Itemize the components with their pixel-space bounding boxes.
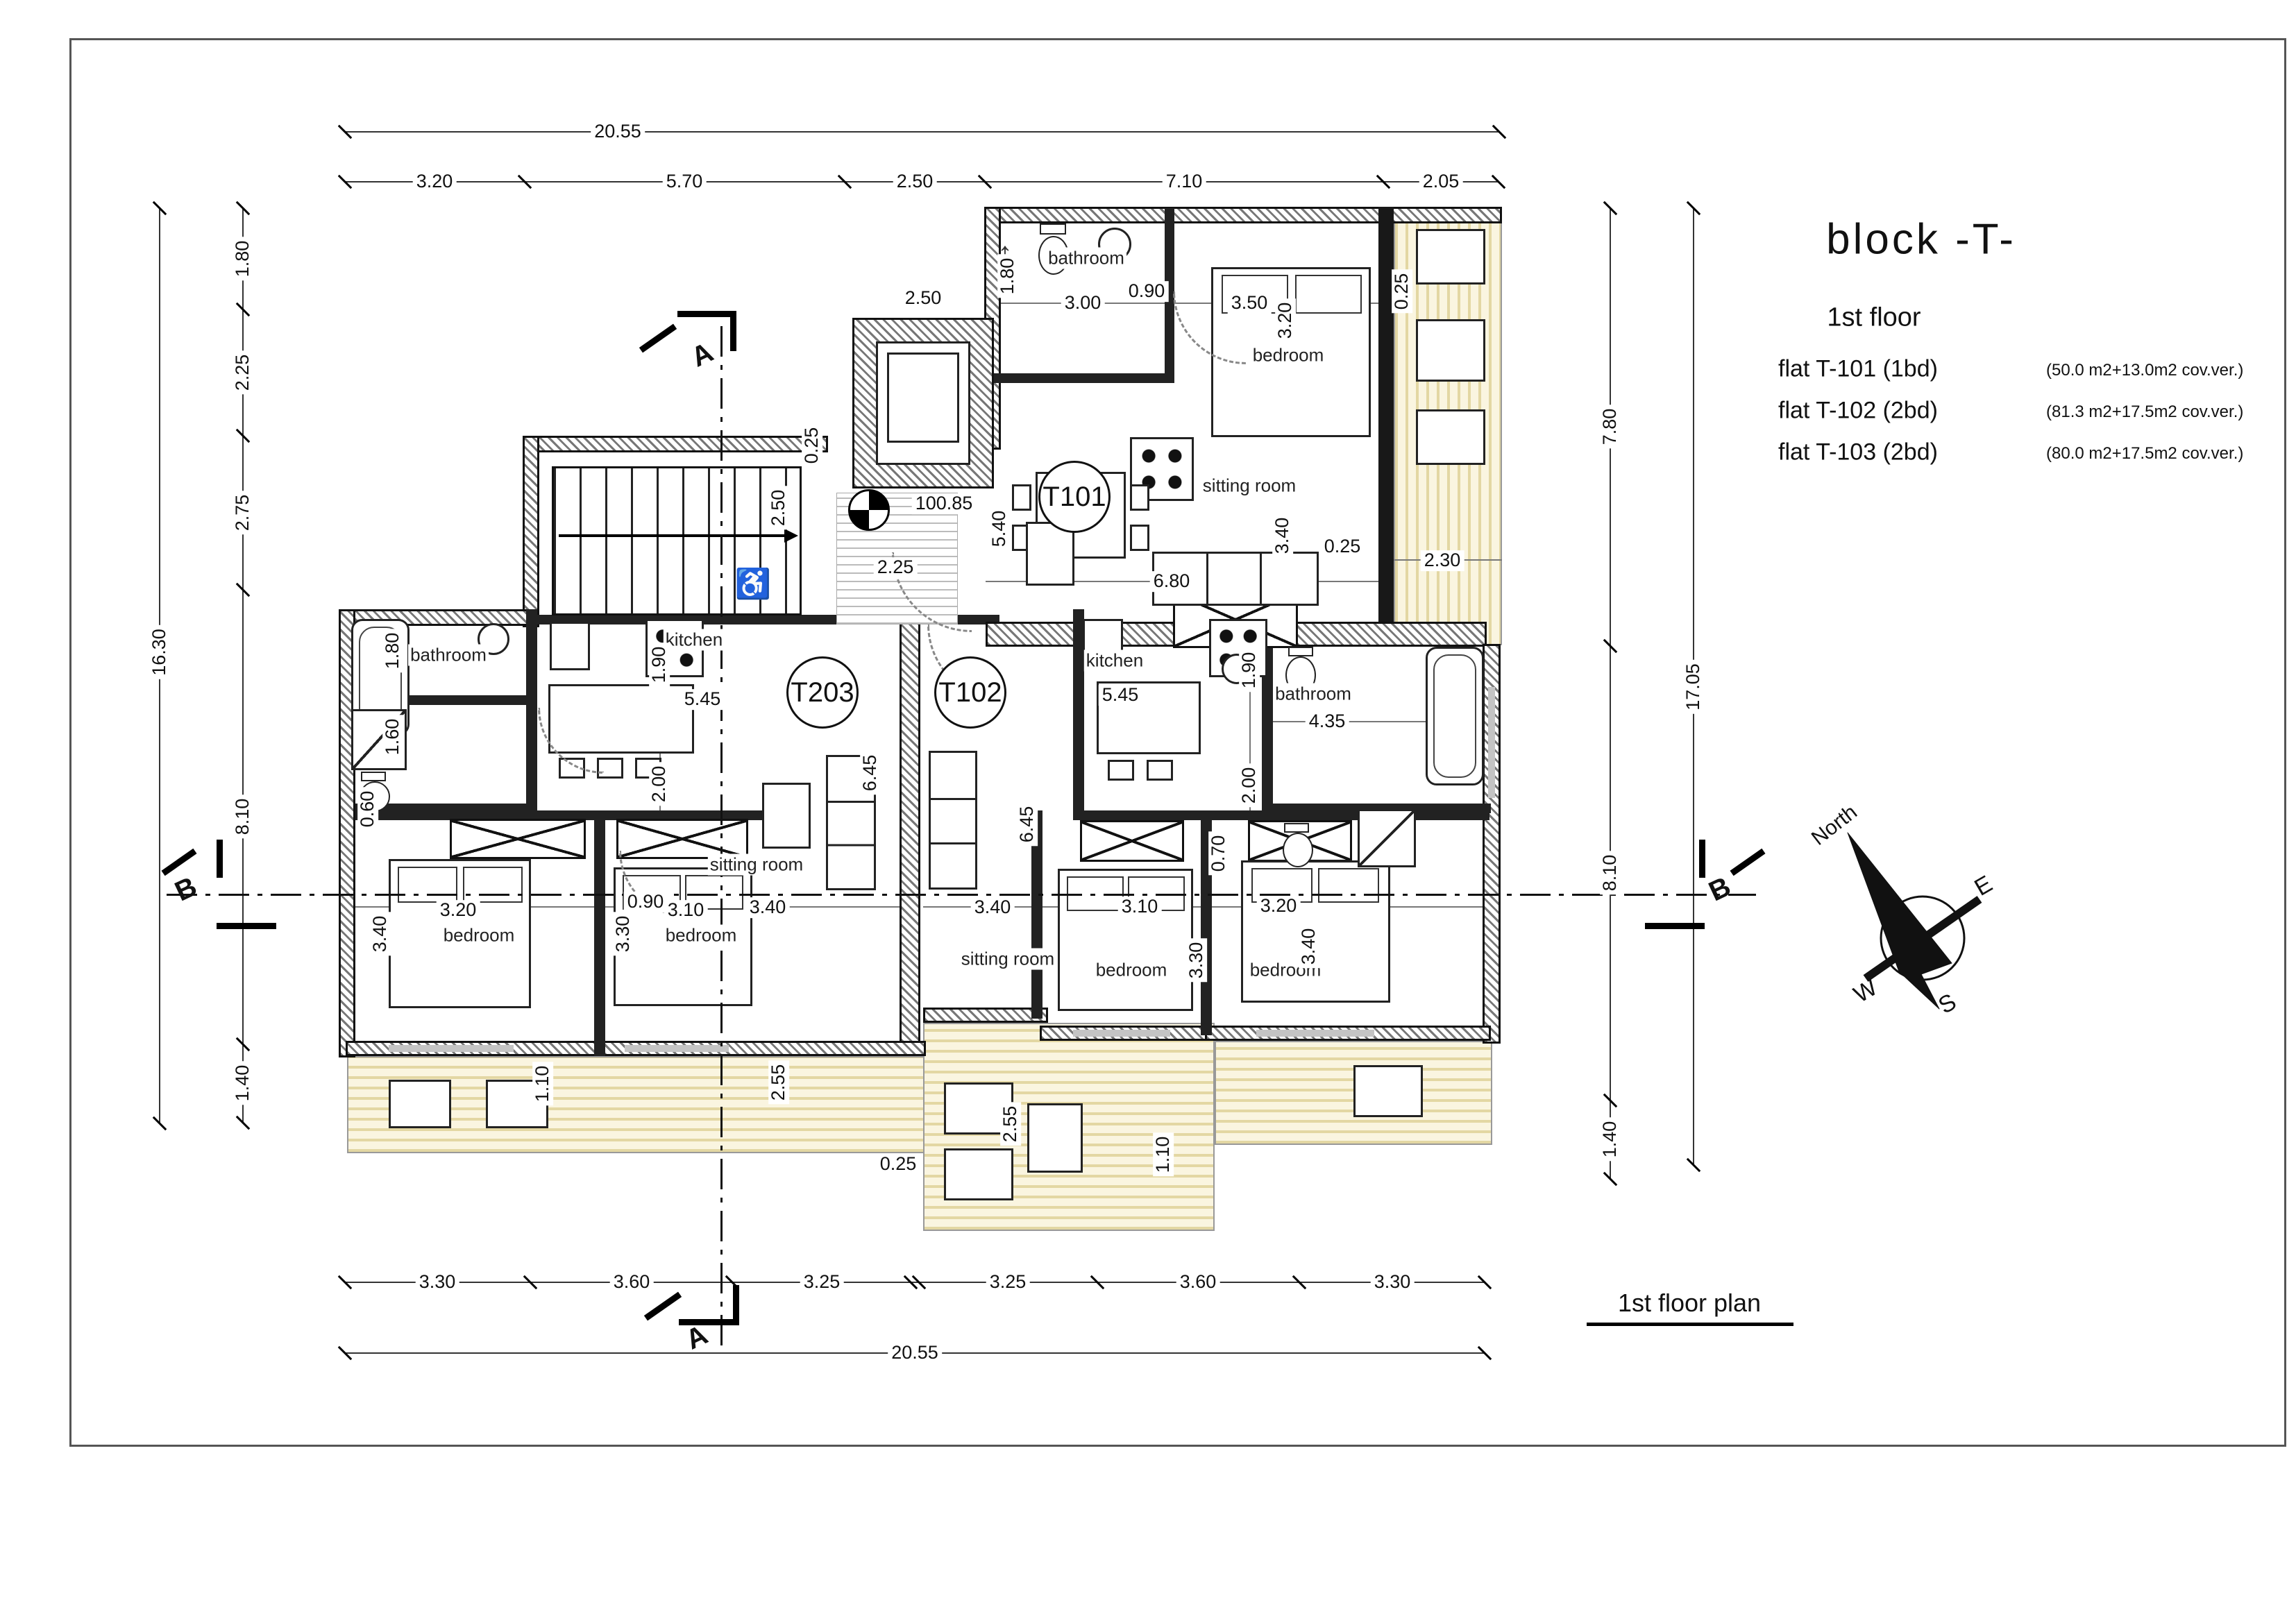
dim-inner: 0.60 (357, 788, 378, 831)
room-label-kitchen-t203: kitchen (664, 629, 725, 651)
dim-bottom-total: 20.55 (888, 1343, 942, 1363)
stair-arrow-line (559, 534, 788, 537)
dim-top-total: 20.55 (591, 121, 645, 142)
dim-inner: 0.90 (1125, 281, 1169, 302)
dim-line-left-segments (242, 208, 244, 1123)
dim-inner: 0.70 (1208, 832, 1229, 876)
dim-inner: 0.25 (1321, 536, 1365, 557)
accessibility-icon: ♿ (735, 568, 771, 602)
dim-inner: 6.45 (860, 751, 881, 795)
elevator-cab (887, 352, 959, 443)
toilet-tank (1284, 823, 1309, 833)
room-label-sitting-t203: sitting room (708, 854, 805, 876)
room-label-bedroom-l1: bedroom (441, 925, 517, 946)
dim-inner: 4.35 (1306, 711, 1349, 732)
pillow (398, 867, 457, 903)
coffee-table (762, 783, 811, 849)
flat-name-1: flat T-101 (1bd) (1778, 356, 1938, 383)
dim-inner: 1.60 (382, 715, 403, 759)
dim-inner: 1.80 (382, 629, 403, 673)
room-label-kitchen-t102: kitchen (1084, 650, 1145, 672)
dim-inner: 1.10 (1153, 1133, 1174, 1177)
flat-area-1: (50.0 m2+13.0m2 cov.ver.) (2046, 361, 2243, 380)
dim-inner: 3.20 (1275, 299, 1296, 343)
dim-left-1: 1.80 (233, 237, 253, 281)
dim-inner: 3.10 (1118, 897, 1162, 917)
dim-left-4: 8.10 (233, 795, 253, 839)
toilet-tank (1288, 647, 1313, 656)
unit-label-t203-text: T203 (791, 677, 854, 708)
room-label-bathroom-t101: bathroom (1046, 248, 1126, 269)
dim-bottom-2: 3.60 (610, 1272, 654, 1293)
chair (1012, 484, 1031, 511)
dim-bottom-4: 3.25 (986, 1272, 1030, 1293)
dim-inner: 5.45 (1099, 685, 1142, 706)
page-subtitle: 1st floor (1827, 303, 1921, 333)
shower (1358, 809, 1416, 867)
veranda-table (1027, 1103, 1083, 1173)
room-label-bathroom-left: bathroom (408, 645, 489, 666)
dim-bottom-5: 3.60 (1176, 1272, 1220, 1293)
dim-inner: 3.10 (664, 900, 708, 921)
dim-inner: 2.55 (768, 1061, 789, 1105)
dim-bottom-offset: 0.25 (877, 1154, 920, 1175)
dim-line-bottom-segments (345, 1282, 1485, 1283)
dim-inner: 2.30 (1421, 550, 1464, 571)
chair (1130, 525, 1149, 551)
toilet-bowl (1283, 833, 1313, 867)
veranda-chair (1353, 1065, 1423, 1117)
compass-west-label: W (1849, 974, 1882, 1008)
chair (1108, 760, 1134, 781)
dim-inner: 2.25 (874, 557, 918, 578)
drawing-canvas: A A B B 100.85 ↑ ♿ bathroom bedroom sitt… (0, 0, 2296, 1623)
dim-bottom-3: 3.25 (800, 1272, 844, 1293)
dim-line-top-total (345, 131, 1499, 133)
dim-inner: 3.30 (1186, 939, 1207, 983)
level-marker-icon (848, 489, 890, 531)
unit-label-t101: T101 (1038, 461, 1111, 533)
level-value: 100.85 (912, 493, 977, 514)
section-marker-a-top (677, 311, 736, 317)
window (1256, 1030, 1374, 1037)
pillow (463, 867, 523, 903)
dim-left-5: 1.40 (233, 1062, 253, 1105)
dim-inner: 6.80 (1150, 571, 1194, 592)
window (1488, 687, 1495, 798)
kitchen-sink (550, 622, 590, 670)
pillow (1318, 868, 1379, 903)
bathtub-inner (1433, 654, 1476, 778)
dim-inner: 2.50 (768, 486, 789, 530)
dim-bottom-6: 3.30 (1371, 1272, 1415, 1293)
dim-right-3: 1.40 (1600, 1118, 1621, 1162)
dim-top-1: 3.20 (413, 171, 457, 192)
toilet-tank (1040, 223, 1066, 235)
partition-bedrooms-right-n (1073, 810, 1489, 820)
dim-inner: 3.40 (971, 897, 1015, 918)
flat-name-3: flat T-103 (2bd) (1778, 439, 1938, 466)
caption-underline (1587, 1323, 1793, 1326)
toilet-tank (361, 772, 386, 781)
unit-label-t101-text: T101 (1043, 482, 1106, 513)
section-marker-b-left (217, 923, 276, 929)
wall-party-center (900, 609, 920, 1044)
dim-inner: 3.40 (1272, 514, 1293, 558)
veranda-chair (944, 1148, 1013, 1200)
wall-stairs-north (523, 436, 828, 452)
wall-north-wing (984, 207, 1502, 223)
sofa (929, 751, 977, 890)
dim-bottom-1: 3.30 (416, 1272, 459, 1293)
dim-inner: 1.90 (1239, 649, 1260, 692)
room-label-sitting-t101: sitting room (1201, 475, 1298, 497)
partition-bath-left (526, 609, 537, 815)
unit-label-t102-text: T102 (938, 677, 1002, 708)
veranda-table (1416, 319, 1485, 382)
wardrobe (1080, 820, 1184, 862)
dim-inner: 0.90 (624, 892, 668, 912)
dim-inner: 2.00 (1239, 764, 1260, 808)
section-line-b (167, 894, 1756, 896)
wall-south-sitting (923, 1008, 1048, 1023)
dim-left-total: 16.30 (149, 625, 170, 679)
veranda-chair (1416, 409, 1485, 465)
pillow (1295, 275, 1362, 314)
room-label-bathroom-right: bathroom (1273, 683, 1353, 705)
room-label-bedroom-t101: bedroom (1251, 345, 1326, 366)
chair (1130, 484, 1149, 511)
compass-icon: North E W S (1798, 791, 2006, 1020)
partition-bed1-bed2 (594, 810, 605, 1056)
dim-inner: 3.20 (1257, 896, 1301, 917)
section-marker-b-right (1645, 923, 1705, 929)
dim-inner: 2.00 (649, 763, 670, 806)
section-marker-b-left (217, 840, 223, 878)
dim-inner: 1.90 (649, 643, 670, 687)
dim-inner: 3.50 (1228, 293, 1272, 314)
dim-inner: 3.20 (437, 900, 480, 921)
dim-inner: 2.50 (902, 288, 945, 309)
dim-left-2: 2.25 (233, 351, 253, 395)
dim-inner: 5.45 (681, 689, 725, 710)
dim-top-4: 7.10 (1163, 171, 1206, 192)
dim-inner: 3.40 (1299, 925, 1319, 969)
chair (1147, 760, 1173, 781)
dim-right-1: 7.80 (1600, 405, 1621, 449)
dim-right-2: 8.10 (1600, 851, 1621, 895)
window (389, 1045, 514, 1052)
unit-label-t203: T203 (786, 656, 859, 729)
flat-area-2: (81.3 m2+17.5m2 cov.ver.) (2046, 402, 2243, 422)
dim-inner: 0.25 (802, 424, 822, 468)
dim-inner: 3.40 (370, 912, 391, 956)
veranda-chair (1416, 229, 1485, 284)
room-label-bedroom-r1: bedroom (1094, 960, 1170, 981)
partition-t101-bath-s (986, 373, 1174, 383)
room-label-bedroom-l2: bedroom (664, 925, 739, 946)
compass-east-label: E (1970, 871, 1997, 901)
room-label-sitting-t102: sitting room (959, 949, 1056, 970)
dim-inner: 3.40 (746, 897, 790, 918)
window (625, 1045, 729, 1052)
veranda-chair (389, 1080, 451, 1128)
dim-left-3: 2.75 (233, 491, 253, 535)
dim-top-3: 2.50 (893, 171, 937, 192)
dim-inner: 1.80 (997, 255, 1018, 298)
dim-inner: 6.45 (1017, 803, 1038, 847)
compass-south-label: S (1934, 989, 1961, 1019)
dim-inner: 0.25 (1392, 270, 1412, 314)
dim-top-5: 2.05 (1419, 171, 1463, 192)
dim-inner: 3.00 (1061, 293, 1105, 314)
unit-label-t102: T102 (934, 656, 1006, 729)
flat-name-2: flat T-102 (2bd) (1778, 398, 1938, 425)
dim-right-total: 17.05 (1683, 660, 1704, 714)
dim-line-right-segments (1610, 208, 1611, 1179)
wardrobe (450, 819, 586, 859)
section-line-a (720, 326, 723, 1350)
dim-inner: 3.30 (613, 912, 634, 956)
dim-inner: 1.10 (532, 1062, 553, 1106)
page-title: block -T- (1826, 215, 2016, 264)
dim-inner: 5.40 (989, 507, 1010, 551)
section-marker-b-right (1699, 840, 1705, 878)
bed-right-1 (1058, 869, 1193, 1011)
dim-top-2: 5.70 (663, 171, 707, 192)
stair-arrow-head (784, 529, 798, 543)
bathtub (1426, 647, 1484, 785)
dim-inner: 2.55 (1000, 1103, 1021, 1146)
wall-stairs-west (523, 436, 539, 627)
window (1073, 1030, 1170, 1037)
flat-area-3: (80.0 m2+17.5m2 cov.ver.) (2046, 444, 2243, 464)
plan-caption: 1st floor plan (1618, 1289, 1761, 1318)
